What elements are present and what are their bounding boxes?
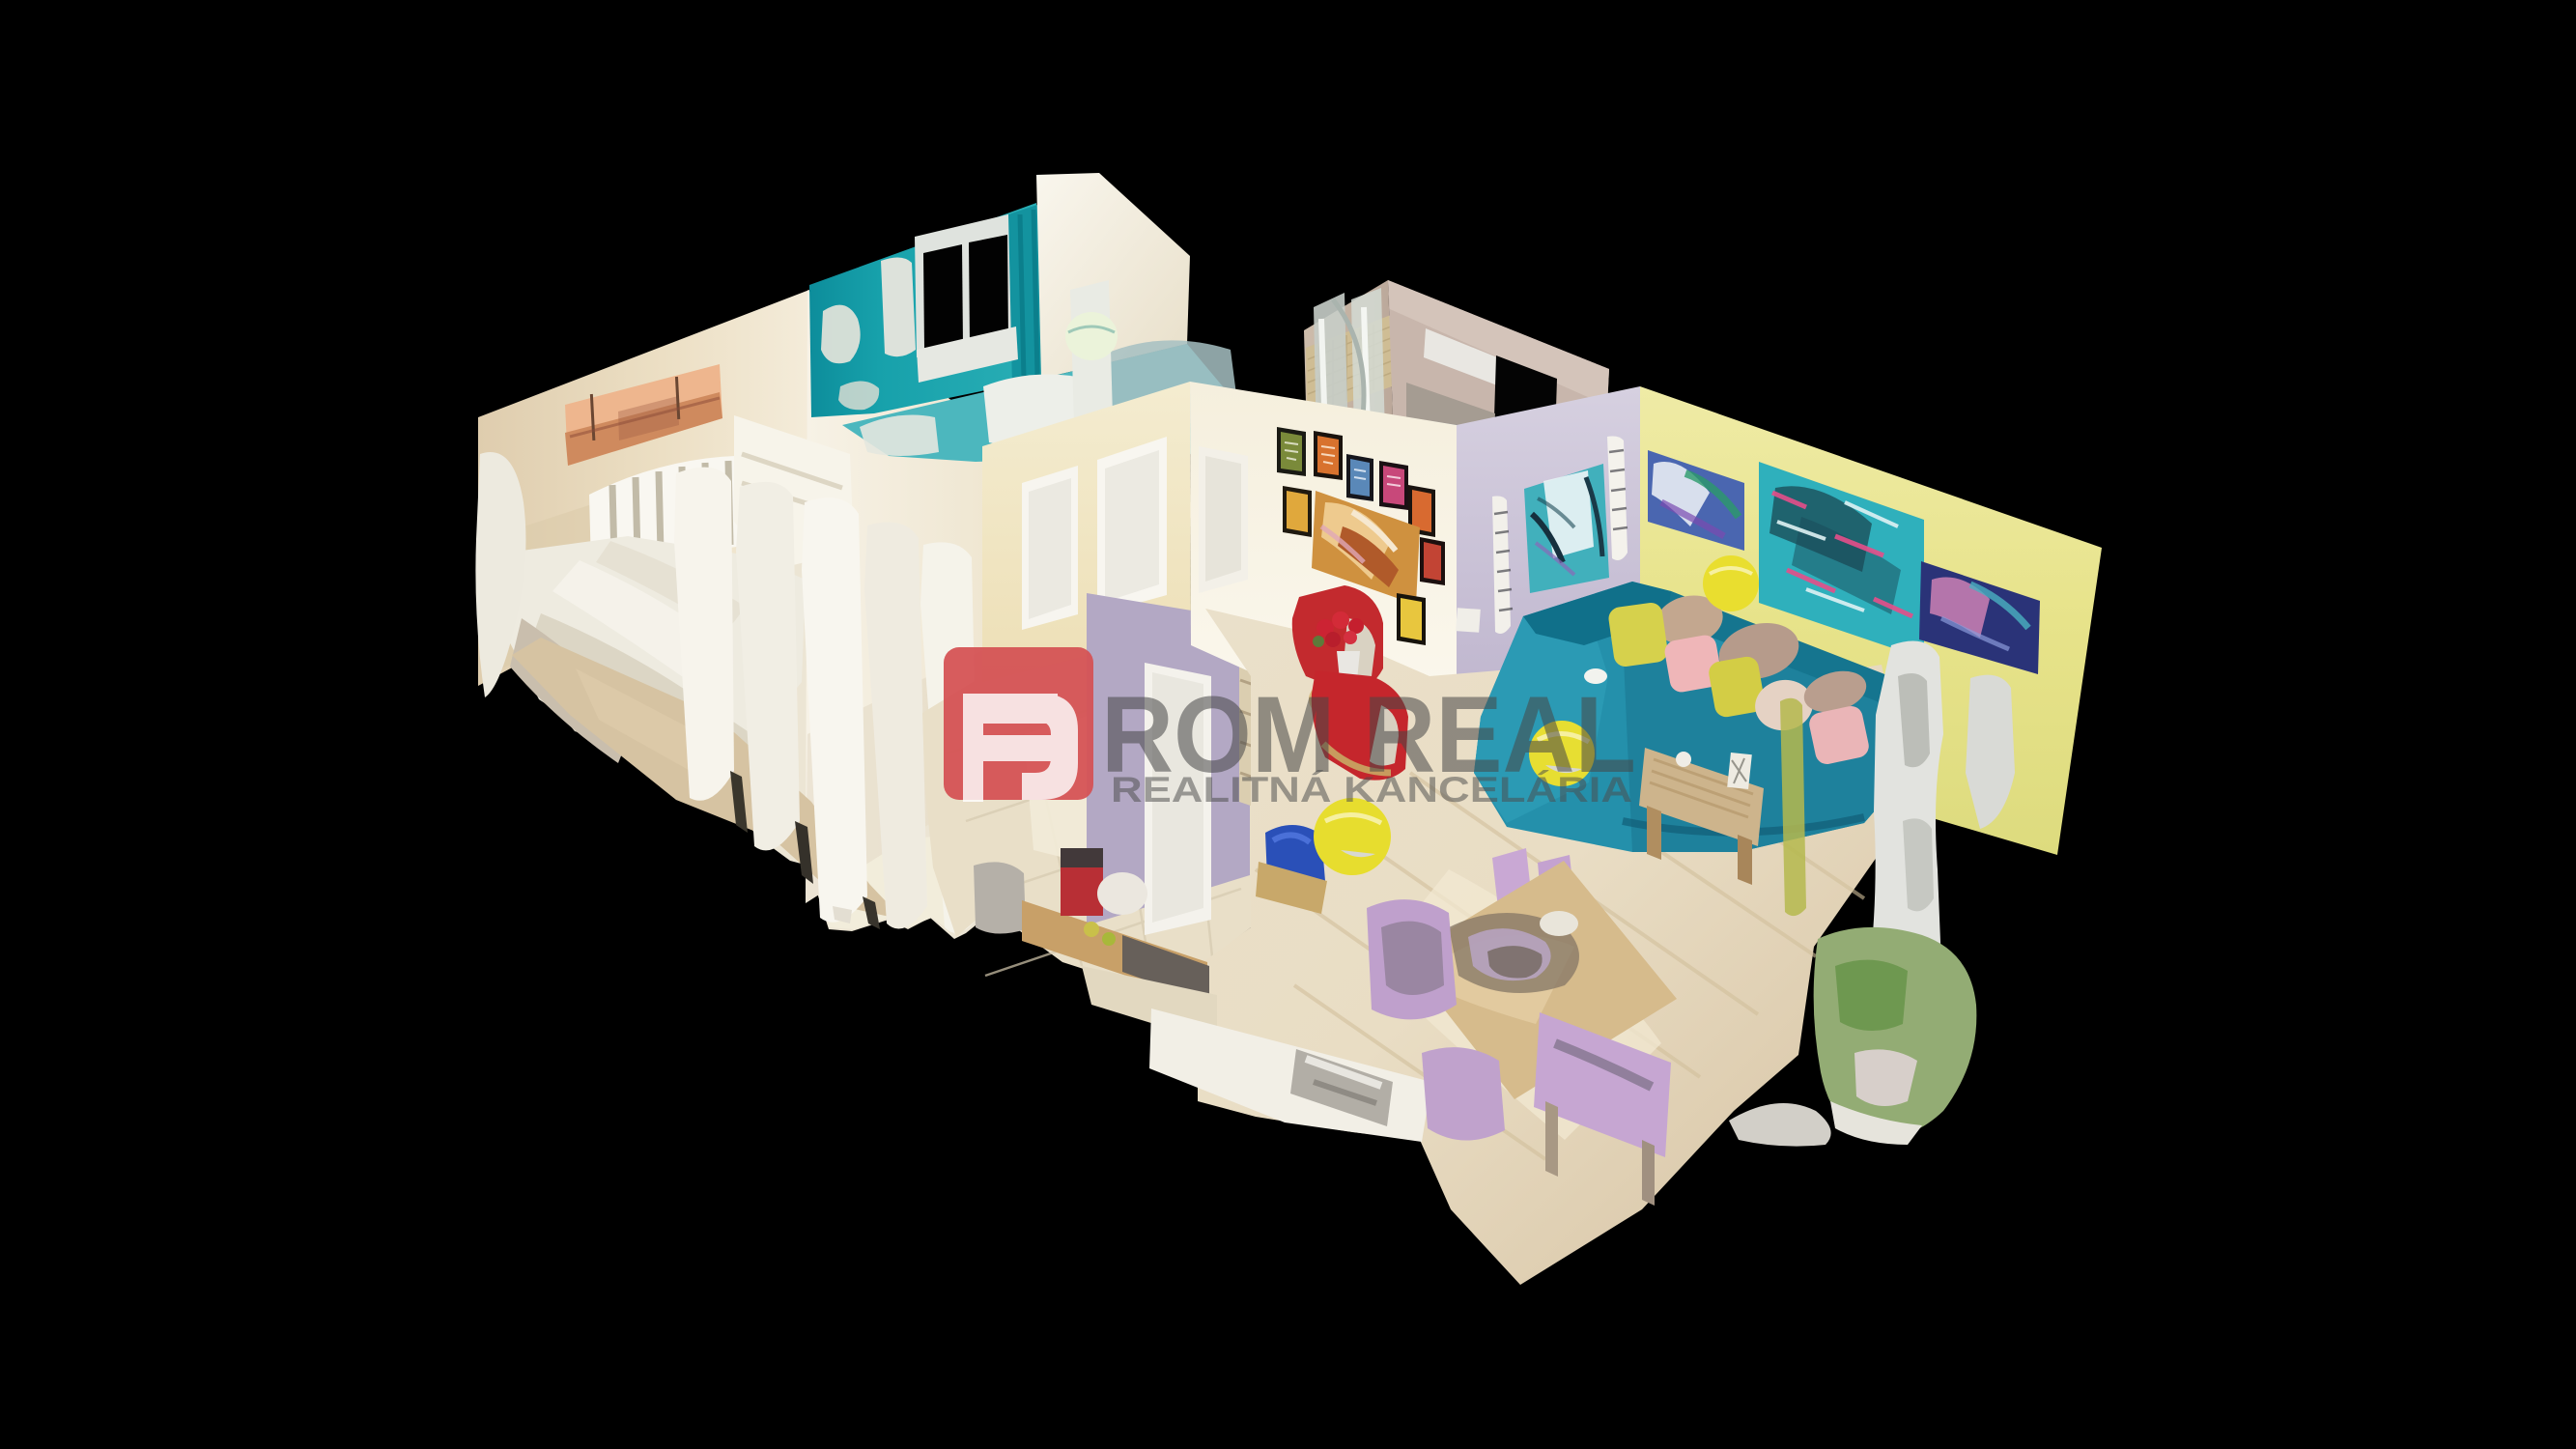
svg-text:REALITNÁ KANCELÁRIA: REALITNÁ KANCELÁRIA (1111, 770, 1632, 810)
